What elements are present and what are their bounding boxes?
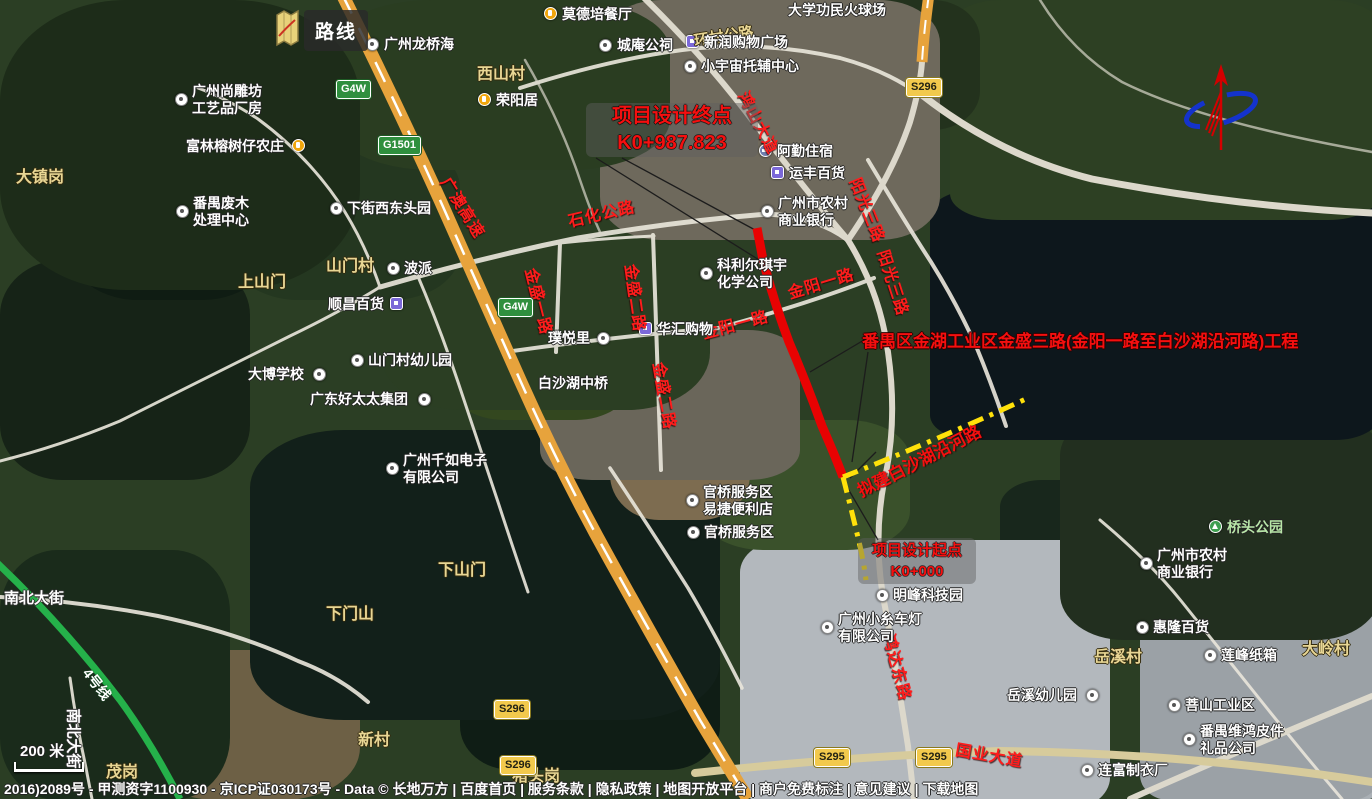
- poi-label[interactable]: 广州小糸车灯有限公司: [838, 611, 922, 645]
- dot-poi-icon[interactable]: [1081, 764, 1094, 777]
- dot-poi-icon[interactable]: [876, 589, 889, 602]
- dot-poi-icon[interactable]: [175, 93, 188, 106]
- food-poi-icon[interactable]: [478, 93, 491, 106]
- poi-label[interactable]: 菩山工业区: [1185, 697, 1255, 714]
- poi-label[interactable]: 官桥服务区易捷便利店: [703, 484, 773, 518]
- dot-poi-icon[interactable]: [700, 267, 713, 280]
- dot-poi-icon[interactable]: [418, 393, 431, 406]
- poi-label[interactable]: 新润购物广场: [704, 34, 788, 51]
- poi-label[interactable]: 广州市农村商业银行: [778, 195, 848, 229]
- dot-poi-icon[interactable]: [1136, 621, 1149, 634]
- dot-poi-icon[interactable]: [1086, 689, 1099, 702]
- poi-label[interactable]: 白沙湖中桥: [538, 375, 608, 392]
- village-label: 上山门: [238, 268, 286, 292]
- dot-poi-icon[interactable]: [1168, 699, 1181, 712]
- route-shield-badge: G4W: [498, 298, 533, 317]
- poi-label[interactable]: 运丰百货: [789, 165, 845, 182]
- poi-label[interactable]: 连富制衣厂: [1098, 762, 1168, 779]
- dot-poi-icon[interactable]: [686, 494, 699, 507]
- poi-label[interactable]: 小宇宙托辅中心: [701, 58, 799, 75]
- dot-poi-icon[interactable]: [1204, 649, 1217, 662]
- dot-poi-icon[interactable]: [176, 205, 189, 218]
- poi-label[interactable]: 官桥服务区: [704, 524, 774, 541]
- dot-poi-icon[interactable]: [351, 354, 364, 367]
- route-shield-badge: S296: [500, 756, 536, 775]
- poi-label[interactable]: 莫德培餐厅: [562, 6, 632, 23]
- route-shield-badge: S295: [916, 748, 952, 767]
- project-start-label: 项目设计起点: [858, 540, 976, 561]
- poi-label[interactable]: 下街西东头园: [347, 200, 431, 217]
- village-label: 新村: [358, 726, 390, 750]
- project-end-chainage: K0+987.823: [586, 130, 758, 157]
- dot-poi-icon[interactable]: [597, 332, 610, 345]
- north-arrow-icon: [1178, 58, 1264, 153]
- poi-label[interactable]: 明峰科技园: [893, 587, 963, 604]
- dot-poi-icon[interactable]: [387, 262, 400, 275]
- route-shield-badge: G1501: [378, 136, 421, 155]
- poi-label[interactable]: 岳溪幼儿园: [1007, 687, 1077, 704]
- village-label: 岳溪村: [1094, 643, 1142, 667]
- scale-bar: 200 米: [14, 740, 84, 772]
- village-label: 下门山: [326, 600, 374, 624]
- poi-label[interactable]: 番禺维鸿皮件礼品公司: [1200, 723, 1284, 757]
- poi-label[interactable]: 富林榕树仔农庄: [186, 138, 284, 155]
- dot-poi-icon[interactable]: [1140, 557, 1153, 570]
- poi-label[interactable]: 荣阳居: [496, 92, 538, 109]
- route-legend-label: 路线: [304, 10, 368, 51]
- poi-label[interactable]: 顺昌百货: [328, 296, 384, 313]
- project-end-annotation: 项目设计终点 K0+987.823: [586, 103, 758, 157]
- poi-label[interactable]: 广州市农村商业银行: [1157, 547, 1227, 581]
- route-shield-badge: G4W: [336, 80, 371, 99]
- dot-poi-icon[interactable]: [386, 462, 399, 475]
- scale-bar-rule: [14, 762, 84, 772]
- poi-label[interactable]: 广东好太太集团: [310, 391, 408, 408]
- poi-label[interactable]: 华汇购物: [657, 321, 713, 338]
- poi-label[interactable]: 阿勤住宿: [777, 143, 833, 160]
- route-shield-badge: S296: [494, 700, 530, 719]
- poi-label[interactable]: 大博学校: [248, 366, 304, 383]
- food-poi-icon[interactable]: [292, 139, 305, 152]
- project-title: 番禺区金湖工业区金盛三路(金阳一路至白沙湖沿河路)工程: [862, 327, 1298, 352]
- poi-label[interactable]: 惠隆百货: [1153, 619, 1209, 636]
- village-label: 大岭村: [1302, 635, 1350, 659]
- road-name-label: 南北大街: [4, 587, 64, 608]
- poi-label[interactable]: 番禺废木处理中心: [193, 195, 249, 229]
- route-legend[interactable]: 路线: [274, 8, 368, 52]
- shop-poi-icon[interactable]: [390, 297, 403, 310]
- poi-label[interactable]: 广州龙桥海: [384, 36, 454, 53]
- poi-label[interactable]: 广州千如电子有限公司: [403, 452, 487, 486]
- dot-poi-icon[interactable]: [330, 202, 343, 215]
- park-poi-icon[interactable]: [1209, 520, 1222, 533]
- scale-bar-label: 200 米: [20, 740, 84, 761]
- poi-label[interactable]: 莲峰纸箱: [1221, 647, 1277, 664]
- satellite-map-canvas[interactable]: 项目设计终点 K0+987.823 项目设计起点 K0+000 番禺区金湖工业区…: [0, 0, 1372, 799]
- shop-poi-icon[interactable]: [771, 166, 784, 179]
- village-label: 大镇岗: [16, 163, 64, 187]
- dot-poi-icon[interactable]: [313, 368, 326, 381]
- dot-poi-icon[interactable]: [1183, 733, 1196, 746]
- dot-poi-icon[interactable]: [761, 205, 774, 218]
- poi-label[interactable]: 城庵公祠: [617, 37, 673, 54]
- poi-label[interactable]: 桥头公园: [1227, 519, 1283, 536]
- food-poi-icon[interactable]: [544, 7, 557, 20]
- project-start-annotation: 项目设计起点 K0+000: [858, 538, 976, 584]
- poi-label[interactable]: 山门村幼儿园: [368, 352, 452, 369]
- project-end-label: 项目设计终点: [586, 103, 758, 130]
- poi-label[interactable]: 科利尔琪宇化学公司: [717, 257, 787, 291]
- village-label: 西山村: [477, 60, 525, 84]
- poi-label[interactable]: 广州尚雕坊工艺品厂房: [192, 83, 262, 117]
- village-label: 山门村: [326, 252, 374, 276]
- poi-label[interactable]: 波派: [404, 260, 432, 277]
- map-attribution[interactable]: 2016)2089号 - 甲测资字1100930 - 京ICP证030173号 …: [4, 779, 978, 799]
- route-shield-badge: S296: [906, 78, 942, 97]
- dot-poi-icon[interactable]: [821, 621, 834, 634]
- poi-label[interactable]: 大学功民火球场: [788, 2, 886, 19]
- project-start-chainage: K0+000: [858, 561, 976, 582]
- dot-poi-icon[interactable]: [684, 60, 697, 73]
- route-shield-badge: S295: [814, 748, 850, 767]
- poi-label[interactable]: 璞悦里: [548, 330, 590, 347]
- dot-poi-icon[interactable]: [687, 526, 700, 539]
- dot-poi-icon[interactable]: [599, 39, 612, 52]
- village-label: 下山门: [438, 556, 486, 580]
- route-map-icon: [274, 8, 300, 52]
